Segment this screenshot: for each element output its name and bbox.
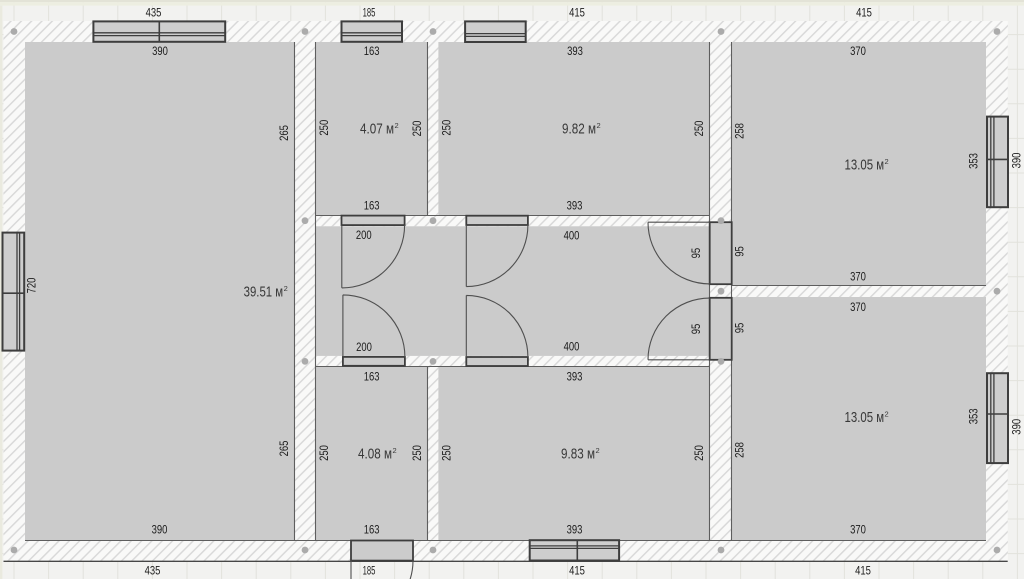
svg-text:185: 185 xyxy=(363,6,376,19)
svg-text:95: 95 xyxy=(734,323,747,334)
svg-text:720: 720 xyxy=(26,278,39,294)
svg-text:9.83 м: 9.83 м xyxy=(561,446,595,463)
svg-text:390: 390 xyxy=(152,45,168,58)
svg-text:370: 370 xyxy=(850,271,866,284)
svg-text:200: 200 xyxy=(356,229,372,242)
svg-text:390: 390 xyxy=(152,523,168,536)
svg-text:250: 250 xyxy=(411,445,424,461)
svg-text:250: 250 xyxy=(693,121,706,137)
svg-text:250: 250 xyxy=(318,120,331,136)
svg-text:163: 163 xyxy=(364,45,380,58)
svg-text:250: 250 xyxy=(441,445,454,461)
svg-text:2: 2 xyxy=(596,446,600,455)
svg-text:2: 2 xyxy=(393,446,397,455)
svg-text:163: 163 xyxy=(364,370,380,383)
svg-text:265: 265 xyxy=(278,125,291,141)
svg-text:435: 435 xyxy=(145,565,161,578)
svg-text:2: 2 xyxy=(395,121,399,130)
svg-text:2: 2 xyxy=(284,284,288,293)
svg-text:250: 250 xyxy=(411,121,424,137)
svg-text:95: 95 xyxy=(690,248,703,259)
svg-text:370: 370 xyxy=(850,523,866,536)
svg-text:250: 250 xyxy=(441,120,454,136)
svg-text:415: 415 xyxy=(569,565,585,578)
svg-text:393: 393 xyxy=(567,45,583,58)
svg-text:163: 163 xyxy=(364,523,380,536)
svg-text:2: 2 xyxy=(885,410,889,419)
svg-text:415: 415 xyxy=(569,6,585,19)
svg-text:200: 200 xyxy=(356,341,372,354)
svg-text:415: 415 xyxy=(855,565,871,578)
svg-text:258: 258 xyxy=(733,123,746,139)
svg-text:393: 393 xyxy=(567,370,583,383)
svg-text:4.07 м: 4.07 м xyxy=(360,121,394,138)
svg-text:163: 163 xyxy=(364,199,380,212)
svg-text:390: 390 xyxy=(1010,419,1023,435)
svg-text:370: 370 xyxy=(850,301,866,314)
svg-text:95: 95 xyxy=(690,324,703,335)
svg-text:370: 370 xyxy=(850,45,866,58)
svg-text:393: 393 xyxy=(567,523,583,536)
svg-text:9.82 м: 9.82 м xyxy=(562,121,596,138)
svg-text:400: 400 xyxy=(564,230,580,243)
svg-text:435: 435 xyxy=(146,6,162,19)
svg-text:353: 353 xyxy=(968,153,981,169)
svg-text:39.51 м: 39.51 м xyxy=(244,283,284,300)
svg-text:258: 258 xyxy=(733,442,746,458)
svg-text:95: 95 xyxy=(734,246,747,257)
svg-text:2: 2 xyxy=(885,157,889,166)
svg-text:4.08 м: 4.08 м xyxy=(358,446,392,463)
svg-text:393: 393 xyxy=(567,199,583,212)
svg-text:250: 250 xyxy=(693,445,706,461)
svg-text:13.05 м: 13.05 м xyxy=(845,409,885,426)
svg-text:13.05 м: 13.05 м xyxy=(845,156,885,173)
svg-text:390: 390 xyxy=(1010,153,1023,169)
svg-text:250: 250 xyxy=(318,445,331,461)
svg-text:400: 400 xyxy=(564,340,580,353)
svg-text:265: 265 xyxy=(278,441,291,457)
svg-text:353: 353 xyxy=(968,409,981,425)
svg-text:415: 415 xyxy=(856,6,872,19)
svg-text:2: 2 xyxy=(597,121,601,130)
svg-text:185: 185 xyxy=(363,565,376,578)
